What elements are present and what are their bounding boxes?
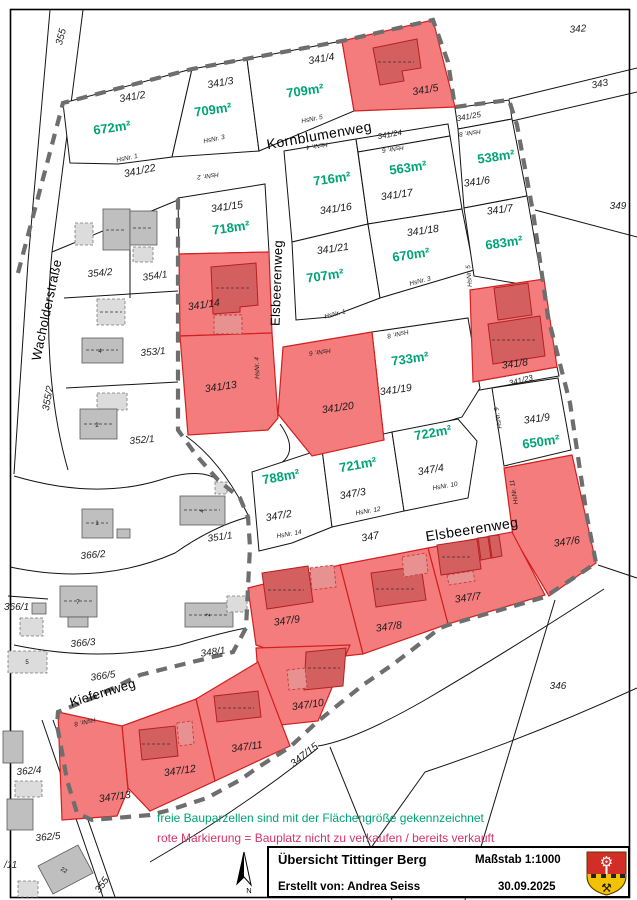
map-date: 30.09.2025 [498, 881, 556, 893]
parcel-number: 366/2 [80, 549, 106, 562]
parcel-number: 362/4 [16, 765, 42, 778]
legend-available-text: freie Bauparzellen sind mit der Flächeng… [157, 811, 485, 825]
title-block: Übersicht Tittinger Berg Maßstab 1:1000 … [268, 847, 629, 897]
parcel-341-17 [358, 136, 462, 224]
building-annex [75, 223, 93, 245]
parcel-number: 352/1 [129, 434, 155, 447]
building [103, 209, 130, 250]
building-annex [310, 565, 336, 590]
parcel-number: 362/5 [35, 831, 61, 844]
building-annex [214, 315, 242, 334]
building [139, 726, 178, 760]
building [117, 529, 130, 538]
building-annex [133, 247, 153, 262]
building [3, 731, 23, 763]
building [214, 691, 261, 722]
map-scale: Maßstab 1:1000 [475, 854, 561, 866]
building [68, 617, 88, 627]
building-annex [20, 618, 43, 636]
crest-checker [620, 874, 625, 878]
crest-checker [601, 874, 606, 878]
map-title: Übersicht Tittinger Berg [278, 852, 427, 867]
parcel-number: 366/3 [70, 637, 96, 650]
building-annex [287, 668, 307, 690]
building [304, 648, 346, 690]
building [32, 603, 46, 614]
crozier-icon [606, 865, 608, 874]
legend-sold-text: rote Markierung = Bauplatz nicht zu verk… [157, 831, 495, 845]
building [262, 566, 313, 609]
crest-checker [611, 874, 616, 878]
coat-of-arms: ⚙ ⚒ [587, 852, 626, 895]
hsnr-label: HsNr. 4 [254, 357, 262, 379]
parcel-number: 353/1 [140, 346, 166, 359]
cadastral-map-page: Kornblumenweg Elsbeerenweg Elsbeerenweg … [0, 0, 637, 900]
parcel-number: 346 [550, 681, 567, 692]
building-annex [227, 596, 247, 612]
street-elsbeerenweg-upper: Elsbeerenweg [268, 240, 286, 326]
parcel-347-13 [58, 712, 128, 820]
building-annex [402, 553, 428, 577]
building-annex [97, 393, 127, 410]
parcel-number: 349 [610, 201, 627, 212]
building [494, 283, 532, 320]
parcel-number: /11 [3, 860, 17, 871]
building [82, 338, 123, 363]
parcel-number: 366/1 [4, 602, 29, 613]
map-author: Erstellt von: Andrea Seiss [278, 881, 420, 893]
parcel-number: 354/2 [87, 267, 113, 280]
building-annex [177, 721, 194, 746]
building [7, 799, 33, 830]
crest-checker [591, 874, 596, 878]
cadastral-map: Kornblumenweg Elsbeerenweg Elsbeerenweg … [0, 0, 637, 900]
building-annex [18, 881, 38, 897]
hammers-icon: ⚒ [601, 881, 612, 895]
building-annex [15, 781, 42, 797]
parcel-number: 342 [569, 23, 587, 35]
north-arrow-label: N [246, 886, 251, 895]
